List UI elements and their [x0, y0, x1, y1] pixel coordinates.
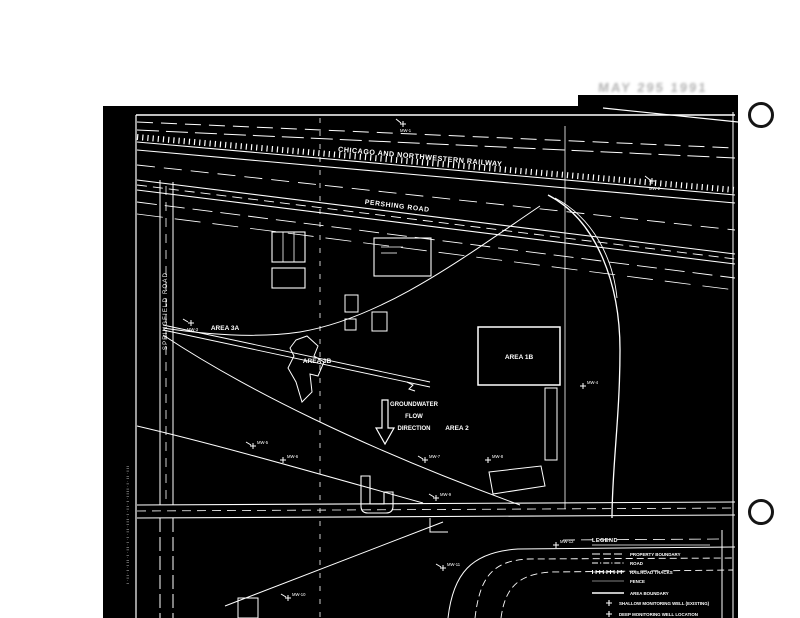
- site-plan-drawing: CHICAGO AND NORTHWESTERN RAILWAY PERSHIN…: [103, 106, 738, 618]
- groundwater-line2: FLOW: [405, 414, 423, 420]
- buildings: [238, 232, 560, 618]
- legend-entry-label: PROPERTY BOUNDARY: [630, 552, 681, 557]
- well-label: MW-9: [440, 492, 452, 497]
- groundwater-flow-note: GROUNDWATER FLOW DIRECTION: [376, 382, 439, 444]
- legend-entry-label: ROAD: [630, 561, 643, 566]
- area-labels: AREA 3A AREA 3B AREA 1B AREA 2: [211, 325, 534, 432]
- drawing-frame: [136, 108, 738, 618]
- margin-notes: l·ll·l·lll·l·ll·l·l·ll·lll·l·ll·l·llll·l…: [125, 464, 130, 583]
- area-2-label: AREA 2: [445, 425, 469, 432]
- legend: LEGEND PROPERTY BOUNDARY ROAD RAILROAD T…: [592, 538, 710, 617]
- well-label: MW-6: [287, 454, 299, 459]
- left-road-lines: [160, 180, 173, 618]
- legend-entry-label: FENCE: [630, 579, 645, 584]
- legend-entry-label: SHALLOW MONITORING WELL (EXISTING): [619, 601, 710, 606]
- legend-title: LEGEND: [592, 538, 618, 544]
- groundwater-line1: GROUNDWATER: [390, 402, 439, 408]
- section-lines: [320, 118, 565, 618]
- site-plan-scan: CHICAGO AND NORTHWESTERN RAILWAY PERSHIN…: [103, 106, 738, 618]
- pershing-road-lines: [137, 180, 735, 290]
- well-label: MW-10: [292, 592, 306, 597]
- area-1b-label: AREA 1B: [505, 354, 534, 361]
- groundwater-line3: DIRECTION: [398, 426, 431, 432]
- well-label: MW-11: [447, 562, 461, 567]
- well-label: MW-3: [187, 327, 199, 332]
- monitoring-wells: MW-1 MW-2 MW-3 MW-4 MW-5 MW-6 MW-7 MW-8 …: [183, 119, 661, 601]
- legend-entry-label: AREA BOUNDARY: [630, 591, 669, 596]
- well-label: MW-8: [492, 454, 504, 459]
- hole-punch-bottom: [748, 499, 774, 525]
- railway-label: CHICAGO AND NORTHWESTERN RAILWAY: [338, 145, 503, 169]
- legend-entry-label: DEEP MONITORING WELL LOCATION: [619, 612, 698, 617]
- legend-entry-label: RAILROAD TRACKS: [630, 570, 673, 575]
- area-3a-label: AREA 3A: [211, 325, 240, 332]
- well-label: MW-1: [400, 128, 412, 133]
- hole-punch-top: [748, 102, 774, 128]
- well-label: MW-4: [587, 380, 599, 385]
- well-label: MW-5: [257, 440, 269, 445]
- well-label: MW-2: [649, 186, 661, 191]
- area-3b-label: AREA 3B: [303, 358, 332, 365]
- site-curves: [137, 195, 620, 606]
- scanned-page: { "stamp": { "text": "MAY 295 1991" }, "…: [0, 0, 800, 618]
- well-label: MW-7: [429, 454, 441, 459]
- well-label: MW-12: [560, 539, 574, 544]
